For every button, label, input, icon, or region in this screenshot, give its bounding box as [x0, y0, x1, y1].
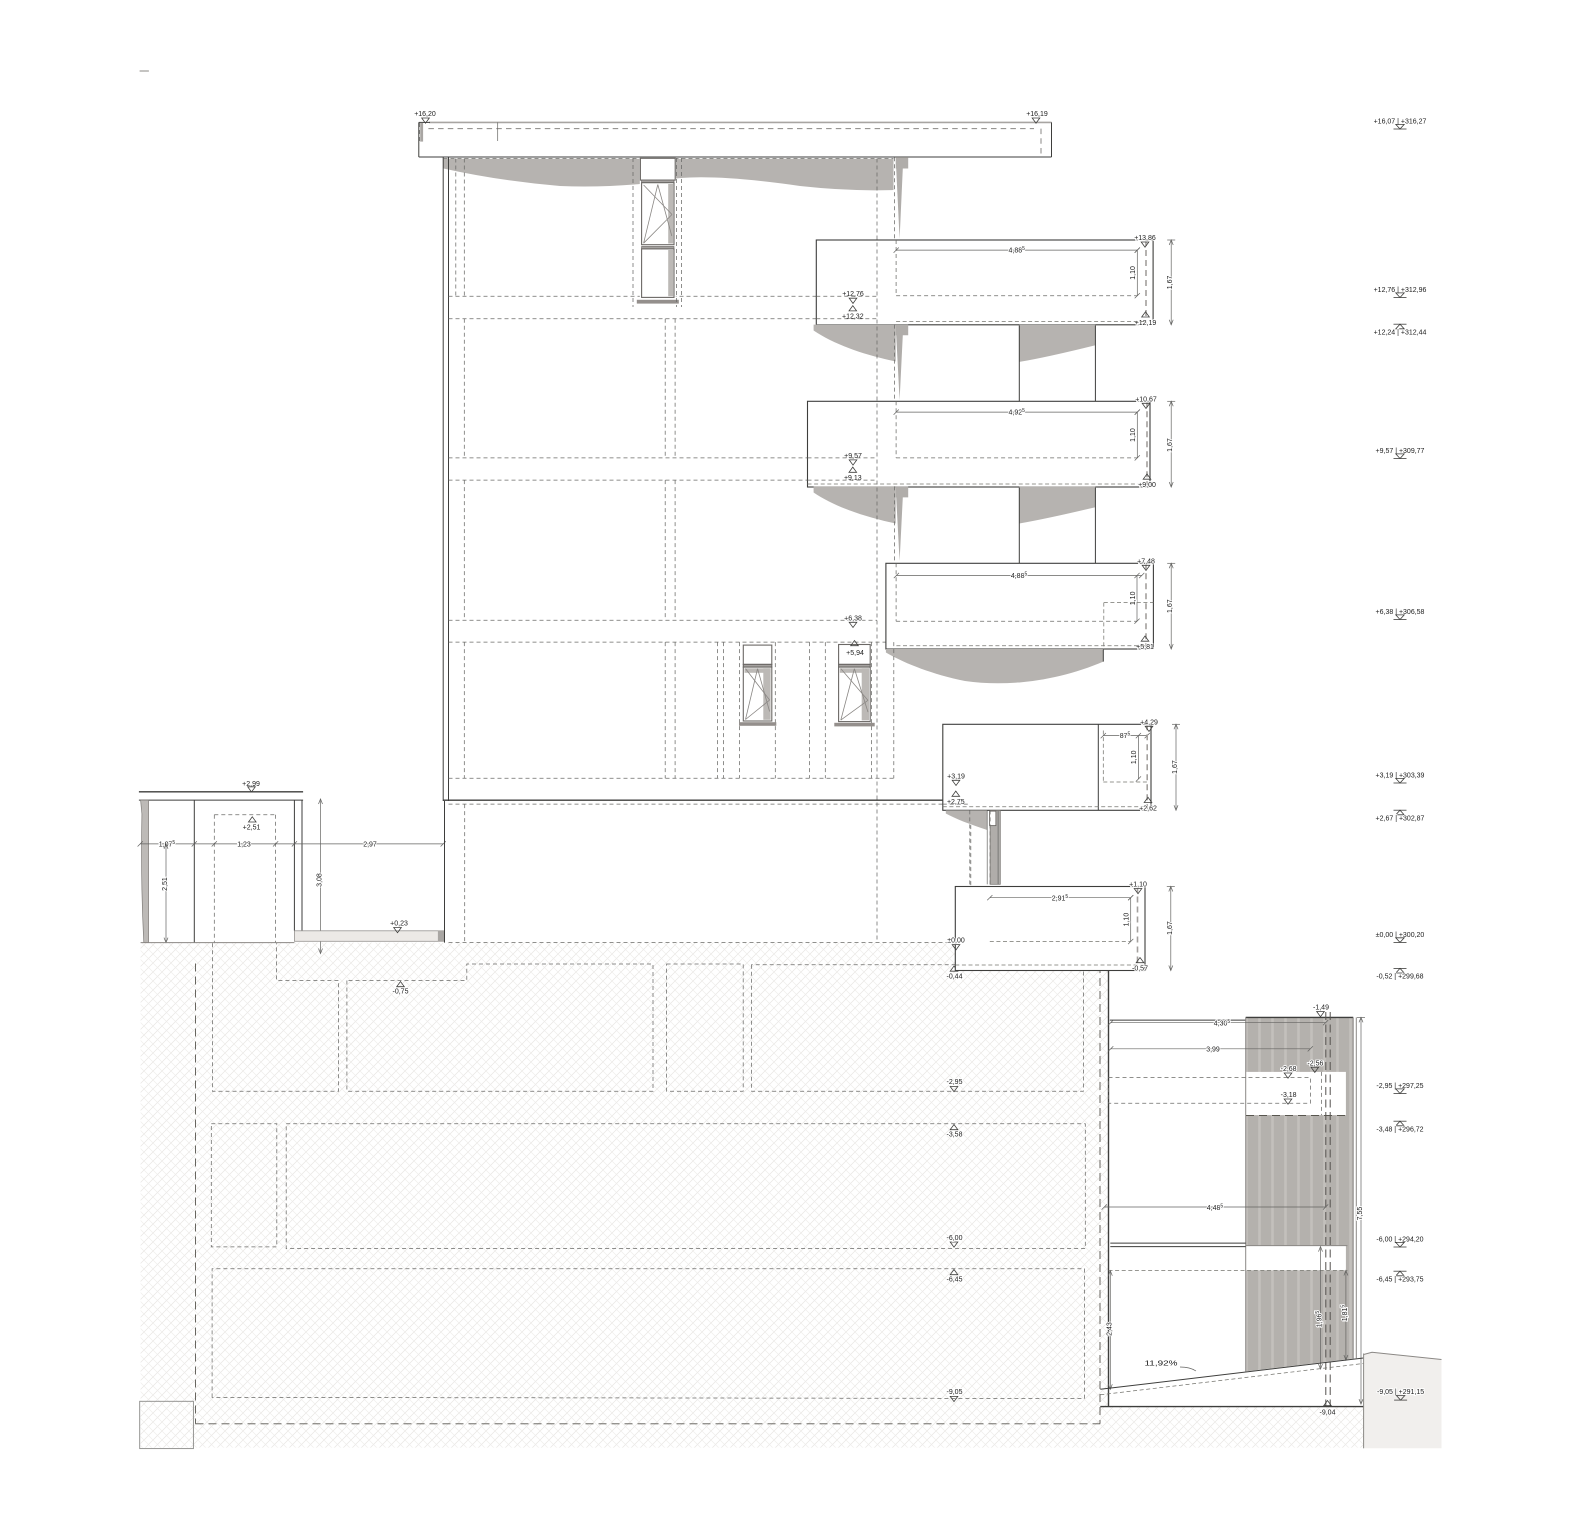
svg-text:-9,05: -9,05	[947, 1389, 963, 1396]
svg-text:+9,13: +9,13	[844, 475, 862, 482]
svg-text:+2,75: +2,75	[947, 799, 965, 806]
svg-text:1,67: 1,67	[1167, 599, 1174, 613]
svg-text:2,51: 2,51	[162, 877, 169, 891]
svg-text:+2,51: +2,51	[243, 825, 261, 832]
svg-text:-9,04: -9,04	[1320, 1410, 1336, 1417]
svg-text:1,67: 1,67	[1172, 760, 1179, 774]
svg-text:+7,48: +7,48	[1137, 558, 1155, 565]
svg-text:+0,23: +0,23	[390, 921, 408, 928]
svg-text:1,10: 1,10	[1124, 913, 1131, 927]
svg-text:+9,57: +9,57	[844, 453, 862, 460]
svg-text:+12,24 | +312,44: +12,24 | +312,44	[1374, 329, 1427, 336]
svg-text:+6,38: +6,38	[844, 615, 862, 622]
svg-text:-2,68: -2,68	[1281, 1066, 1297, 1073]
svg-text:1,10: 1,10	[1130, 266, 1137, 280]
svg-text:-0,75: -0,75	[393, 989, 409, 996]
svg-text:-2,56: -2,56	[1307, 1061, 1323, 1068]
svg-text:11,92%: 11,92%	[1145, 1361, 1178, 1368]
svg-text:+9,00: +9,00	[1138, 482, 1156, 489]
svg-text:-6,00: -6,00	[947, 1235, 963, 1242]
svg-text:+16,19: +16,19	[1026, 111, 1048, 118]
svg-text:+4,29: +4,29	[1140, 719, 1158, 726]
svg-text:+13,86: +13,86	[1134, 235, 1156, 242]
svg-text:1,10: 1,10	[1131, 750, 1138, 764]
svg-text:-6,45 | +293,75: -6,45 | +293,75	[1376, 1276, 1423, 1283]
svg-text:1,67: 1,67	[1167, 275, 1174, 289]
svg-text:7,55: 7,55	[1357, 1207, 1364, 1221]
svg-text:1,67: 1,67	[1167, 438, 1174, 452]
svg-text:-2,95: -2,95	[947, 1079, 963, 1086]
svg-text:+2,62: +2,62	[1139, 805, 1157, 812]
svg-text:-0,57: -0,57	[1132, 966, 1148, 973]
svg-text:2,43: 2,43	[1106, 1322, 1113, 1336]
svg-text:+1,10: +1,10	[1129, 882, 1147, 889]
svg-text:-9,05 | +291,15: -9,05 | +291,15	[1377, 1389, 1424, 1396]
svg-text:-3,18: -3,18	[1281, 1092, 1297, 1099]
svg-text:±0,00: ±0,00	[947, 938, 965, 945]
svg-text:1,10: 1,10	[1130, 428, 1137, 442]
svg-text:+10,67: +10,67	[1135, 396, 1157, 403]
svg-text:-6,45: -6,45	[947, 1277, 963, 1284]
svg-text:3,99: 3,99	[1206, 1047, 1220, 1054]
svg-text:-0,44: -0,44	[947, 974, 963, 981]
svg-text:+16,20: +16,20	[414, 111, 436, 118]
svg-text:-0,52 | +299,68: -0,52 | +299,68	[1376, 974, 1423, 981]
svg-text:-3,58: -3,58	[947, 1132, 963, 1139]
svg-text:1,23: 1,23	[237, 842, 251, 849]
svg-text:3,08: 3,08	[317, 873, 324, 887]
svg-text:+3,19: +3,19	[947, 773, 965, 780]
svg-text:+2,67 | +302,87: +2,67 | +302,87	[1376, 815, 1425, 822]
svg-text:1,67: 1,67	[1167, 921, 1174, 935]
svg-text:+5,81: +5,81	[1136, 644, 1154, 651]
svg-text:+12,19: +12,19	[1135, 320, 1157, 327]
svg-text:-3,48 | +296,72: -3,48 | +296,72	[1376, 1126, 1423, 1133]
svg-text:+5,94: +5,94	[846, 650, 864, 657]
svg-text:2,97: 2,97	[363, 842, 377, 849]
svg-text:+12,32: +12,32	[842, 314, 864, 321]
svg-text:-1,49: -1,49	[1313, 1005, 1329, 1012]
svg-text:+12,76: +12,76	[842, 291, 864, 298]
svg-text:1,10: 1,10	[1130, 591, 1137, 605]
